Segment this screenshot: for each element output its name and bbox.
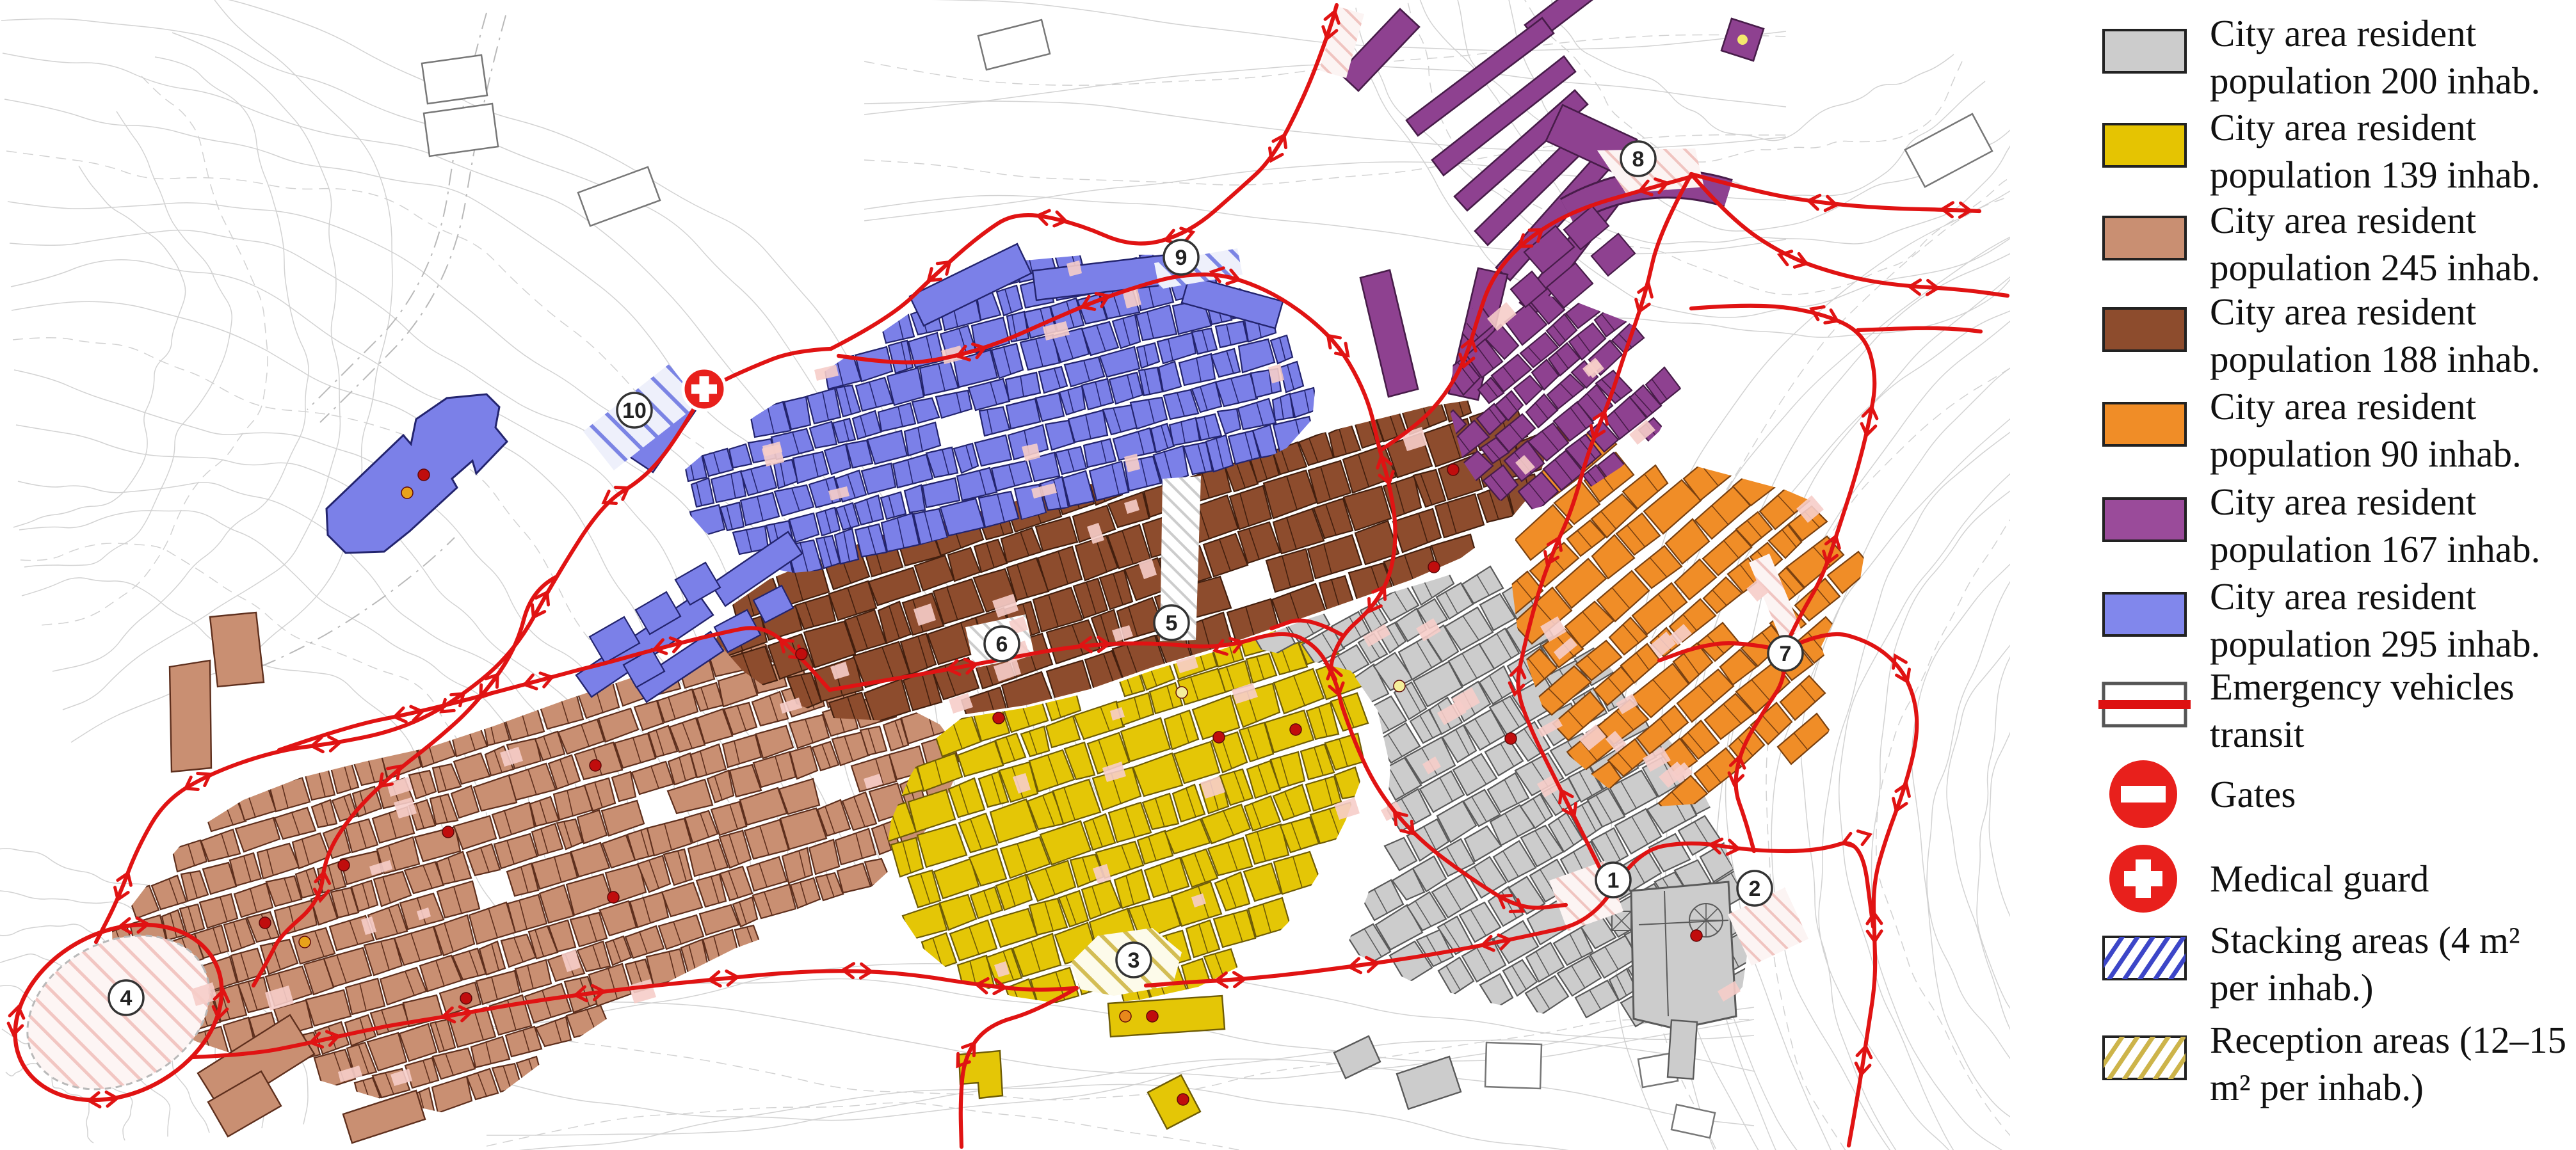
- svg-text:9: 9: [1175, 246, 1187, 270]
- svg-text:Reception areas (12–15: Reception areas (12–15: [2210, 1019, 2566, 1061]
- svg-text:population 90 inhab.: population 90 inhab.: [2210, 433, 2522, 475]
- svg-text:5: 5: [1166, 611, 1178, 635]
- svg-text:City area resident: City area resident: [2210, 575, 2477, 618]
- svg-text:City area resident: City area resident: [2210, 106, 2477, 148]
- svg-text:6: 6: [996, 632, 1008, 657]
- svg-text:8: 8: [1632, 147, 1645, 172]
- svg-text:Emergency vehicles: Emergency vehicles: [2210, 666, 2515, 708]
- svg-text:4: 4: [120, 986, 133, 1010]
- svg-text:Medical guard: Medical guard: [2210, 858, 2429, 900]
- svg-text:transit: transit: [2210, 713, 2305, 755]
- svg-text:7: 7: [1780, 642, 1792, 666]
- svg-text:City area resident: City area resident: [2210, 12, 2477, 54]
- svg-text:population 295 inhab.: population 295 inhab.: [2210, 623, 2540, 665]
- svg-text:population 188 inhab.: population 188 inhab.: [2210, 338, 2540, 380]
- svg-text:population 139 inhab.: population 139 inhab.: [2210, 154, 2540, 196]
- svg-text:1: 1: [1607, 868, 1620, 893]
- svg-text:per inhab.): per inhab.): [2210, 966, 2374, 1009]
- svg-text:City area resident: City area resident: [2210, 199, 2477, 241]
- svg-text:Gates: Gates: [2210, 773, 2296, 815]
- svg-text:Stacking areas (4 m²: Stacking areas (4 m²: [2210, 919, 2520, 961]
- svg-text:3: 3: [1128, 948, 1140, 973]
- svg-text:population 167 inhab.: population 167 inhab.: [2210, 528, 2540, 570]
- svg-text:City area resident: City area resident: [2210, 481, 2477, 523]
- svg-text:10: 10: [622, 399, 647, 423]
- svg-text:2: 2: [1749, 877, 1761, 901]
- svg-text:population 245 inhab.: population 245 inhab.: [2210, 246, 2540, 289]
- svg-text:population 200 inhab.: population 200 inhab.: [2210, 60, 2540, 102]
- svg-text:City area resident: City area resident: [2210, 385, 2477, 427]
- svg-text:City area resident: City area resident: [2210, 291, 2477, 333]
- svg-text:m² per inhab.): m² per inhab.): [2210, 1066, 2424, 1108]
